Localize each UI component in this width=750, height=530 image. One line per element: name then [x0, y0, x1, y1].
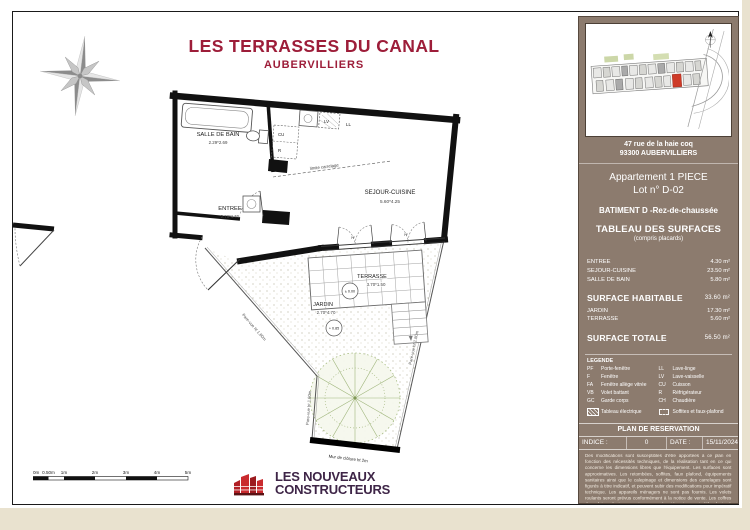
legend-abbr: FA: [587, 382, 601, 388]
legend-title: LEGENDE: [587, 358, 730, 364]
legend-abbr: R: [659, 390, 673, 396]
logo-line1: LES NOUVEAUX: [275, 470, 390, 483]
legend-label: Cuisson: [673, 382, 731, 388]
disclaimer-text: Des modifications sont susceptibles d'êt…: [585, 454, 731, 503]
legend-abbr: CU: [659, 382, 673, 388]
north-arrow-icon: [705, 31, 715, 48]
stairs: [391, 302, 428, 344]
row-label: SALLE DE BAIN: [587, 277, 630, 283]
row-label: ENTREE: [587, 259, 611, 265]
scale-5m: 5m: [185, 470, 192, 475]
table-row: ENTREE 4.30 m²: [585, 258, 732, 267]
legend: LEGENDE PFPorte-fenêtre LLLave-linge FFe…: [585, 354, 732, 418]
legend-label: Soffites et faux-plafond: [673, 409, 731, 415]
reservation-row: INDICE : 0 DATE : 15/11/2024: [579, 437, 738, 450]
legend-abbr: PF: [587, 366, 601, 372]
legend-abbr: LV: [659, 374, 673, 380]
neighbor-wall: [13, 225, 54, 266]
row-value: 5.80 m²: [710, 277, 730, 283]
legend-label: Fenêtre: [601, 374, 659, 380]
project-address: 47 rue de la haie coq 93300 AUBERVILLIER…: [585, 140, 732, 159]
surfaces-table: ENTREE 4.30 m² SEJOUR-CUISINE 23.50 m² S…: [585, 258, 732, 346]
scale-bar: 0m 0.50m 1m 2m 3m 4m 5m: [33, 468, 198, 484]
dims-entree: 2.70*1.55: [221, 214, 240, 219]
label-mur-cloture: Mur de clôture ht 2m: [328, 454, 368, 464]
page-title: LES TERRASSES DU CANAL: [158, 36, 470, 57]
scale-3m: 3m: [123, 470, 130, 475]
row-label: SEJOUR-CUISINE: [587, 268, 636, 274]
table-row: SALLE DE BAIN 5.80 m²: [585, 275, 732, 284]
legend-label: Chaudière: [673, 398, 731, 404]
reservation-title: PLAN DE RESERVATION: [579, 423, 738, 437]
row-label: SURFACE TOTALE: [587, 333, 667, 343]
developer-logo: LES NOUVEAUX CONSTRUCTEURS: [232, 469, 390, 497]
legend-label: Garde corps: [601, 398, 659, 404]
tree: [310, 353, 400, 443]
label-terrasse: TERRASSE: [357, 274, 387, 280]
label-ll: LL: [346, 122, 351, 127]
address-line1: 47 rue de la haie coq: [585, 140, 732, 149]
label-sejour-cuisine: SEJOUR-CUISINE: [365, 190, 416, 196]
row-label: JARDIN: [587, 308, 608, 314]
soffit-icon: [659, 409, 669, 415]
table-row: TERRASSE 5.60 m²: [585, 315, 732, 324]
legend-label: Fenêtre allège vitrée: [601, 382, 659, 388]
site-map-drawing: [586, 24, 729, 134]
logo-text: LES NOUVEAUX CONSTRUCTEURS: [275, 470, 390, 497]
row-label: TERRASSE: [587, 316, 618, 322]
label-pare-vue-left: Pare-vue ht 1.80m: [241, 312, 268, 342]
date-label: DATE :: [667, 437, 703, 449]
dims-jardin: 2.70*4.70: [317, 310, 336, 315]
dims-sejour-cuisine: 5.60*4.25: [380, 199, 400, 204]
logo-buildings-icon: [232, 469, 270, 497]
legend-abbr: CH: [659, 398, 673, 404]
apartment-type: Appartement 1 PIECE: [585, 171, 732, 185]
row-value: 5.60 m²: [710, 316, 730, 322]
indice-label: INDICE :: [579, 437, 627, 449]
legend-label: Volet battant: [601, 390, 659, 396]
label-cu: CU: [278, 132, 284, 137]
legend-label: Lave-linge: [673, 366, 731, 372]
row-value: 33.60 m²: [705, 295, 730, 301]
legend-abbr: VB: [587, 390, 601, 396]
label-entree: ENTREE: [218, 206, 242, 212]
page-subtitle: AUBERVILLIERS: [158, 59, 470, 71]
bathtub: [181, 103, 253, 132]
building-floor: BATIMENT D -Rez-de-chaussée: [585, 206, 732, 215]
scale-1m: 1m: [61, 470, 68, 475]
surfaces-table-subtitle: (compris placards): [585, 236, 732, 242]
title-block: LES TERRASSES DU CANAL AUBERVILLIERS: [158, 36, 470, 71]
label-jardin: JARDIN: [313, 302, 333, 308]
legend-abbr: LL: [659, 366, 673, 372]
scale-4m: 4m: [154, 470, 161, 475]
label-r: R: [278, 148, 281, 153]
scale-2m: 2m: [92, 470, 99, 475]
row-value: 23.50 m²: [707, 268, 730, 274]
level-terrasse: ± 0.00: [345, 290, 355, 294]
legend-label: Porte-fenêtre: [601, 366, 659, 372]
label-pf-1: PF: [351, 236, 355, 240]
lot-marker: [672, 74, 682, 87]
level-jardin: + 0.85: [329, 327, 339, 331]
legend-label: Réfrigérateur: [673, 390, 731, 396]
scale-0m: 0m: [33, 470, 40, 475]
date-value: 15/11/2024: [703, 437, 741, 449]
legend-label: Tableau électrique: [601, 409, 659, 415]
table-row: SEJOUR-CUISINE 23.50 m²: [585, 267, 732, 276]
washbasin: [243, 196, 260, 212]
surfaces-table-title: TABLEAU DES SURFACES: [585, 224, 732, 235]
electrical-panel-icon: [587, 408, 599, 416]
legend-abbr: GC: [587, 398, 601, 404]
scale-050m: 0.50m: [42, 470, 55, 475]
apartment-info: Appartement 1 PIECE Lot n° D-02: [585, 171, 732, 198]
label-pf-2: PF: [404, 233, 408, 237]
info-panel: 47 rue de la haie coq 93300 AUBERVILLIER…: [578, 16, 739, 504]
label-lv: LV: [324, 119, 329, 124]
lot-number: Lot n° D-02: [585, 184, 732, 198]
legend-label: Lave-vaisselle: [673, 374, 731, 380]
surface-totale-row: SURFACE TOTALE 56.50 m²: [585, 333, 732, 343]
disclaimer: Des modifications sont susceptibles d'êt…: [585, 454, 732, 503]
surface-habitable-row: SURFACE HABITABLE 33.60 m²: [585, 293, 732, 303]
floor-plan: SALLE DE BAIN 2.29*2.69 ENTREE 2.70*1.55…: [10, 86, 470, 466]
site-map: [585, 23, 732, 137]
separator: [579, 163, 738, 164]
row-value: 17.30 m²: [707, 308, 730, 314]
row-value: 4.30 m²: [710, 259, 730, 265]
dims-salle-de-bain: 2.29*2.69: [209, 140, 228, 145]
indice-value: 0: [627, 437, 667, 449]
row-label: SURFACE HABITABLE: [587, 293, 683, 303]
logo-line2: CONSTRUCTEURS: [275, 483, 390, 496]
label-salle-de-bain: SALLE DE BAIN: [197, 132, 240, 138]
row-value: 56.50 m²: [705, 335, 730, 341]
legend-abbr: F: [587, 374, 601, 380]
table-row: JARDIN 17.30 m²: [585, 306, 732, 315]
dims-terrasse: 3.70*1.50: [367, 282, 386, 287]
address-line2: 93300 AUBERVILLIERS: [585, 149, 732, 158]
